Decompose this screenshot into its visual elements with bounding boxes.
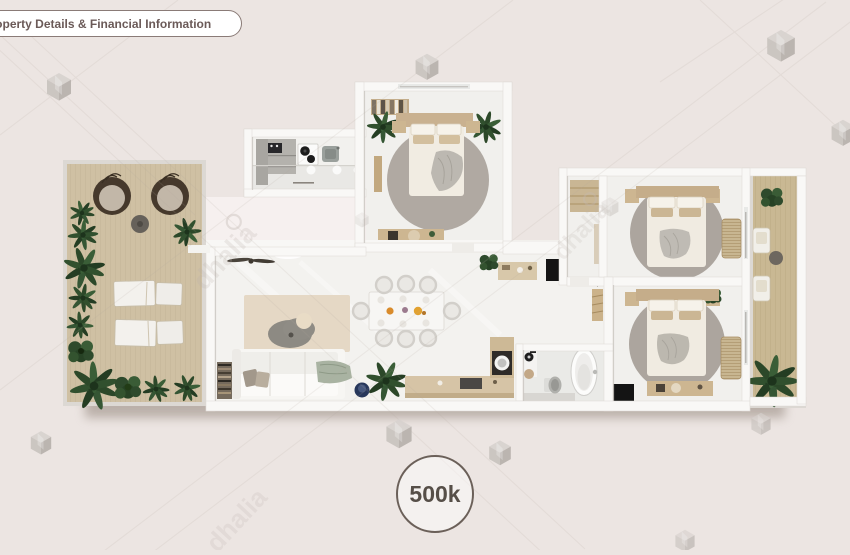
svg-text:dhalia: dhalia [200,482,274,550]
